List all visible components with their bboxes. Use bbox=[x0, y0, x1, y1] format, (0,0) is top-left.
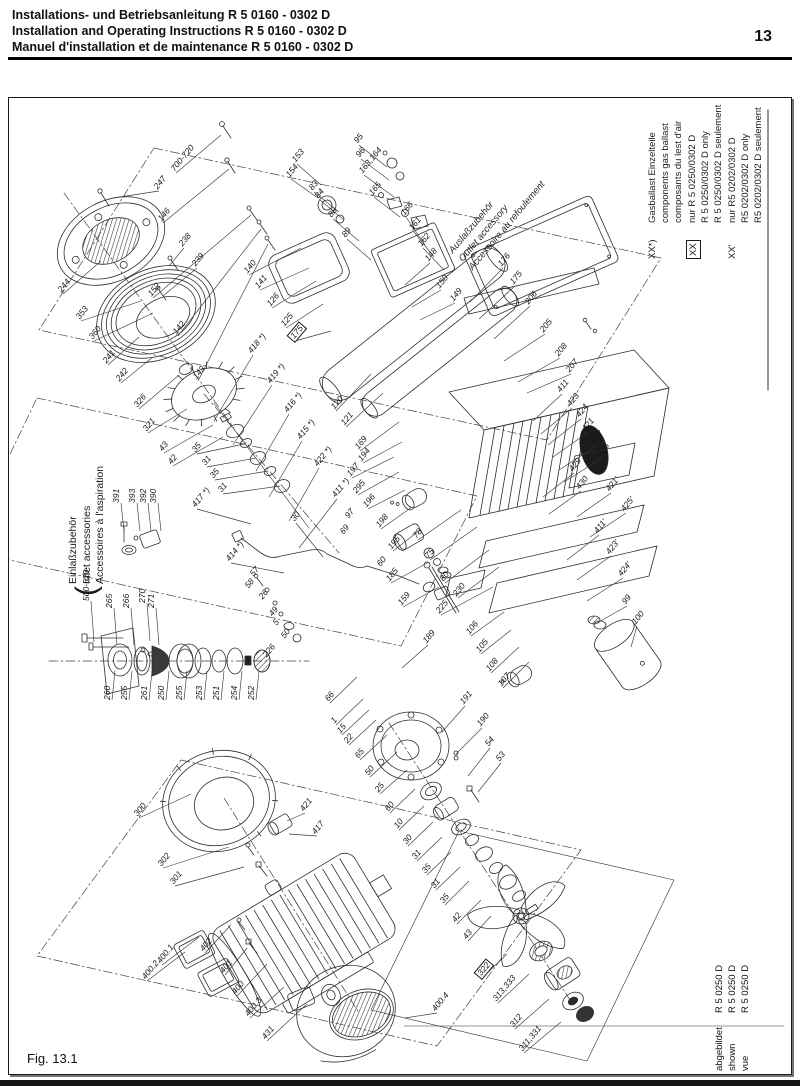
figure-caption: Fig. 13.1 bbox=[27, 1051, 78, 1066]
legend-line: R 5 0250/0302 D only bbox=[699, 105, 712, 223]
part-callout: 255 bbox=[120, 686, 129, 700]
part-callout: 390 bbox=[149, 489, 158, 503]
part-callout: 253 bbox=[195, 686, 204, 700]
legend-line: Gasballast Einzelteile bbox=[646, 121, 659, 223]
shown-label-de: abgebildet bbox=[713, 1013, 726, 1071]
legend-boxed-variant: XX nur R 5 0250/0302 D R 5 0250/0302 D o… bbox=[686, 105, 725, 259]
part-callout: 391 bbox=[112, 489, 121, 503]
inlet-label-fr: Accessoires à l'aspiration bbox=[94, 466, 108, 584]
legend-marker-asterisk: XX*) bbox=[646, 239, 659, 259]
part-callout: 251 bbox=[212, 686, 221, 700]
part-callout: 393 bbox=[128, 489, 137, 503]
inlet-label-en: Inlet accessories bbox=[81, 466, 95, 584]
legend-line: nur R 5 0250/0302 D bbox=[686, 105, 699, 223]
shown-value: R 5 0250 D bbox=[739, 965, 752, 1013]
page-bottom-bar bbox=[0, 1080, 800, 1086]
part-callout: 250 bbox=[157, 686, 166, 700]
part-callout: 255 bbox=[175, 686, 184, 700]
header-title-en: Installation and Operating Instructions … bbox=[12, 24, 347, 39]
header-divider bbox=[8, 57, 792, 60]
shown-model-label: abgebildetR 5 0250 D shownR 5 0250 D vue… bbox=[713, 965, 752, 1071]
shown-value: R 5 0250 D bbox=[726, 965, 739, 1013]
shown-label-fr: vue bbox=[739, 1013, 752, 1071]
diagram-frame: XX*) Gasballast Einzelteile components g… bbox=[8, 97, 792, 1075]
part-callout: 392 bbox=[139, 489, 148, 503]
legend-marker-prime: XX' bbox=[726, 245, 739, 260]
legend-line: R 5 0250/0302 D seulement bbox=[712, 105, 725, 223]
shown-label-en: shown bbox=[726, 1013, 739, 1071]
legend-line: nur R5 0202/0302 D bbox=[726, 107, 739, 223]
part-callout: 500-520 bbox=[82, 570, 91, 601]
inlet-label-de: Einlaßzubehör bbox=[67, 466, 81, 584]
part-callout: 271 bbox=[147, 594, 156, 608]
part-callout: 261 bbox=[140, 686, 149, 700]
manual-page: Installations- und Betriebsanleitung R 5… bbox=[0, 0, 800, 1086]
legend-line: R5 0202/0302 D seulement bbox=[752, 107, 765, 223]
header-title-fr: Manuel d'installation et de maintenance … bbox=[12, 40, 353, 55]
legend-line: components gas ballast bbox=[659, 121, 672, 223]
legend-line: R5 0202/0302 D only bbox=[739, 107, 752, 223]
legend-marker-boxed: XX bbox=[686, 240, 701, 259]
part-callout: 265 bbox=[105, 594, 114, 608]
shown-value: R 5 0250 D bbox=[713, 965, 726, 1013]
part-callout: 254 bbox=[230, 686, 239, 700]
part-callout: 266 bbox=[122, 594, 131, 608]
part-callout: 260 bbox=[103, 686, 112, 700]
legend-line: composants du lest d'air bbox=[672, 121, 685, 223]
page-number: 13 bbox=[754, 28, 772, 46]
part-callout: 252 bbox=[247, 686, 256, 700]
header-title-de: Installations- und Betriebsanleitung R 5… bbox=[12, 8, 330, 23]
legend-gasballast: XX*) Gasballast Einzelteile components g… bbox=[646, 121, 685, 259]
legend-prime-variant: XX' nur R5 0202/0302 D R5 0202/0302 D on… bbox=[726, 107, 765, 259]
